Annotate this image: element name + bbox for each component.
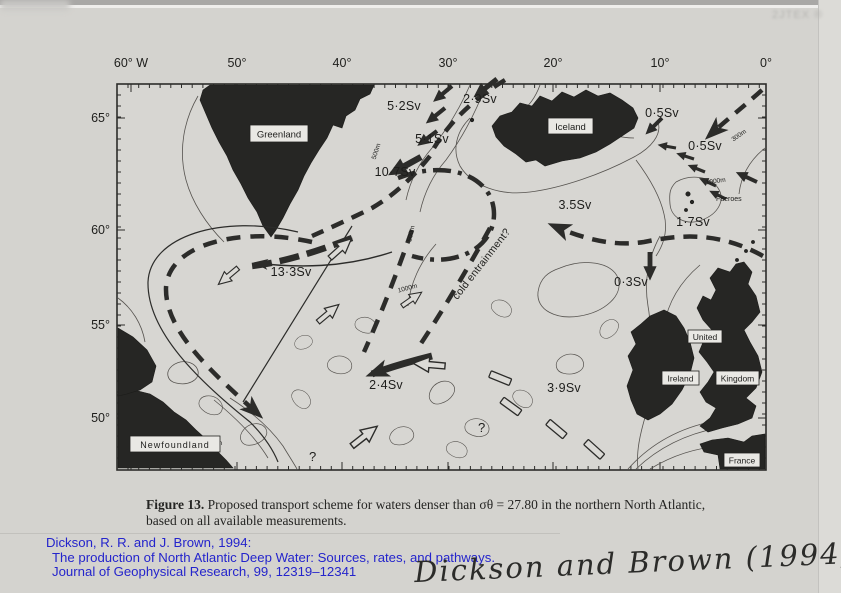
land-shetland-islet xyxy=(744,249,747,252)
place-label-faeroes: Faeroes xyxy=(716,196,742,203)
transport-label: 0·3Sv xyxy=(614,275,648,289)
lon-label: 60° W xyxy=(114,56,148,70)
lat-label: 50° xyxy=(91,411,110,425)
figure-caption: Figure 13. Proposed transport scheme for… xyxy=(146,497,752,529)
citation-line1: Dickson, R. R. and J. Brown, 1994: xyxy=(46,536,495,551)
transport-label: 2·9Sv xyxy=(463,92,497,106)
land-faeroe-islet xyxy=(690,200,694,204)
caption-line1: Proposed transport scheme for waters den… xyxy=(208,497,706,512)
place-label-kingdom: Kingdom xyxy=(716,371,759,385)
transport-label: 2·4Sv xyxy=(369,378,403,392)
svg-text:Greenland: Greenland xyxy=(257,130,301,141)
lon-label: 40° xyxy=(333,56,352,70)
svg-text:Newfoundland: Newfoundland xyxy=(140,440,210,450)
svg-text:Iceland: Iceland xyxy=(555,122,586,133)
transport-label: 0·5Sv xyxy=(688,139,722,153)
land-orkney-islet xyxy=(735,258,738,261)
svg-text:Kingdom: Kingdom xyxy=(721,374,755,384)
scan-streak xyxy=(0,533,560,534)
caption-line2: based on all available measurements. xyxy=(146,513,347,528)
land-faeroe-islet xyxy=(684,208,687,211)
lat-label: 65° xyxy=(91,111,110,125)
svg-text:Ireland: Ireland xyxy=(668,374,694,384)
place-label-newfoundland: Newfoundland xyxy=(130,436,220,452)
transport-label: 5·2Sv xyxy=(387,99,421,113)
lon-label: 30° xyxy=(439,56,458,70)
transport-label: 1·7Sv xyxy=(676,215,710,229)
question-mark: ? xyxy=(478,420,485,435)
scanned-page: 2JTEX ® xyxy=(0,0,841,593)
transport-label: 3·9Sv xyxy=(547,381,581,395)
lat-label: 60° xyxy=(91,223,110,237)
land-islet xyxy=(470,118,474,122)
transport-label: 0·5Sv xyxy=(645,106,679,120)
transport-label: 5·1Sv xyxy=(415,132,449,146)
place-label-ireland: Ireland xyxy=(662,371,699,385)
place-label-united: United xyxy=(688,330,722,343)
transport-label: 3.5Sv xyxy=(559,198,593,212)
lon-label: 0° xyxy=(760,56,772,70)
place-label-france: France xyxy=(724,453,760,467)
lon-label: 10° xyxy=(651,56,670,70)
lon-label: 20° xyxy=(544,56,563,70)
lat-label: 55° xyxy=(91,318,110,332)
place-label-iceland: Iceland xyxy=(548,118,593,134)
land-shetland-islet xyxy=(751,240,754,243)
figure-map: 60° W 50° 40° 30° 20° 10° 0° 65° 60° 55°… xyxy=(0,0,841,497)
transport-label: 13·3Sv xyxy=(271,265,312,279)
transport-label: 10·7Sv xyxy=(375,165,416,179)
question-mark: ? xyxy=(309,449,316,464)
svg-text:United: United xyxy=(693,332,718,342)
lon-label: 50° xyxy=(228,56,247,70)
land-faeroe-islet xyxy=(686,192,690,196)
place-label-greenland: Greenland xyxy=(250,125,308,142)
figure-number: Figure 13. xyxy=(146,497,204,512)
north-atlantic-map: 60° W 50° 40° 30° 20° 10° 0° 65° 60° 55°… xyxy=(0,0,841,492)
svg-text:France: France xyxy=(729,456,756,466)
